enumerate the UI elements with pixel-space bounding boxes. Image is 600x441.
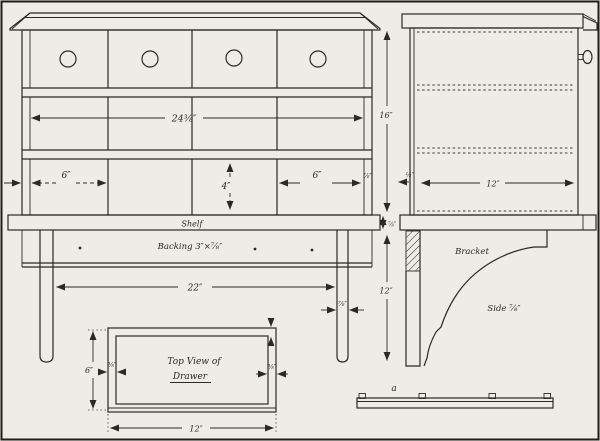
drawer-side-thickness-right-label: ⅜″ <box>268 364 277 371</box>
bracket-height-label: 12″ <box>379 287 392 296</box>
side-depth-label: 12″ <box>486 180 499 189</box>
drawer-title-line2: Drawer <box>172 372 208 382</box>
bracket-label: Bracket <box>454 247 489 257</box>
backing-cross-section-hatch <box>406 231 420 271</box>
drawer-side-thickness-left-label: ⅜″ <box>108 362 117 369</box>
compartment-left-label: 6″ <box>61 171 71 181</box>
compartment-right-label: 6″ <box>312 171 322 181</box>
side-shelf-thickness-label: ⅞″ <box>388 222 397 229</box>
screw-dot <box>79 247 82 250</box>
drawer-height-label: 6″ <box>85 366 93 375</box>
drawing-sheet: 24⅜″ 6″ 4″ 6″ ⅞″ Shelf Backing 3″×⅞″ <box>0 0 600 441</box>
shelf-label: Shelf <box>182 220 205 229</box>
drawer-width-label: 12″ <box>189 425 202 434</box>
compartment-mid-label: 4″ <box>220 182 231 192</box>
screw-dot <box>254 248 257 251</box>
screw-dot <box>311 249 314 252</box>
bracket-side-label: Side ⅞″ <box>487 304 521 314</box>
drawing-canvas: 24⅜″ 6″ 4″ 6″ ⅞″ Shelf Backing 3″×⅞″ <box>0 0 600 441</box>
front-width-label: 24⅜″ <box>171 114 197 125</box>
cleat-label: a <box>391 384 396 394</box>
backing-label: Backing 3″×⅞″ <box>157 242 224 252</box>
strip-thickness-label: ⅞″ <box>338 300 347 308</box>
drawer-title-line1: Top View of <box>167 357 222 367</box>
shelf-construction-drawing: 24⅜″ 6″ 4″ 6″ ⅞″ Shelf Backing 3″×⅞″ <box>0 0 600 441</box>
stile-thickness-label: ⅞″ <box>363 172 372 180</box>
bracket-span-label: 22″ <box>187 284 203 294</box>
side-setback-label: ½″ <box>406 171 415 179</box>
side-height-label: 16″ <box>379 111 392 120</box>
